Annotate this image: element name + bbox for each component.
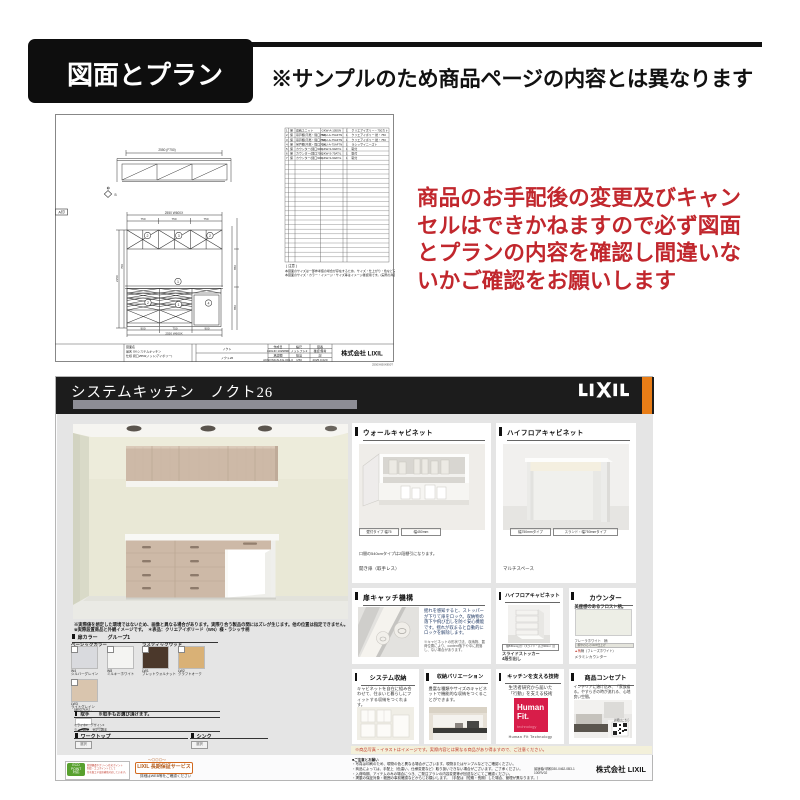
svg-text:GKW-A-105SN: GKW-A-105SN — [322, 129, 342, 133]
svg-text:( 注意 ): ( 注意 ) — [286, 263, 297, 268]
svg-text:1: 1 — [346, 156, 348, 160]
svg-text:1: 1 — [346, 133, 348, 137]
svg-text:確認 備考: 確認 備考 — [314, 348, 327, 353]
svg-text:GKW-S-90AT/L: GKW-S-90AT/L — [322, 147, 342, 151]
svg-text:5: 5 — [286, 147, 288, 151]
svg-text:ノクト26: ノクト26 — [221, 355, 234, 360]
svg-text:仕様 間口2550(ノット)アイボリー): 仕様 間口2550(ノット)アイボリー) — [126, 353, 172, 358]
svg-text:担当: 担当 — [296, 353, 302, 358]
svg-text:GKW-S-75AT/L: GKW-S-75AT/L — [322, 152, 342, 156]
svg-text:本図面のサイズ・カラー・イメージ・サイズ等はイメージ確認用で: 本図面のサイズ・カラー・イメージ・サイズ等はイメージ確認用です。(実際の商品・仕… — [285, 272, 395, 277]
svg-text:3: 3 — [178, 234, 180, 238]
svg-text:2: 2 — [147, 234, 149, 238]
svg-text:カウンター(間口900): カウンター(間口900) — [296, 146, 323, 151]
svg-text:図番: 図番 — [317, 344, 323, 349]
svg-text:クリエアイボリー 総・750: クリエアイボリー 総・750 — [352, 132, 387, 137]
svg-text:AKNOSIGN-KG-001-0: AKNOSIGN-KG-001-0 — [263, 358, 293, 362]
svg-text:詳細はこちら: 詳細はこちら — [614, 718, 630, 722]
svg-text:6: 6 — [286, 152, 288, 156]
svg-text:収納ユニット: 収納ユニット — [296, 128, 313, 133]
svg-text:保: 保 — [290, 155, 293, 160]
svg-text:ノクト: ノクト — [222, 346, 231, 351]
svg-text:作成日: 作成日 — [273, 344, 282, 349]
svg-text:株式会社 LIXIL: 株式会社 LIXIL — [341, 350, 383, 358]
svg-text:保: 保 — [290, 151, 293, 156]
svg-text:取付: 取付 — [352, 146, 358, 151]
svg-text:A印: A印 — [58, 210, 65, 215]
svg-text:750: 750 — [172, 327, 177, 331]
svg-text:750: 750 — [140, 217, 145, 221]
svg-text:2: 2 — [147, 301, 149, 305]
svg-text:4: 4 — [286, 142, 288, 146]
svg-text:取付: 取付 — [352, 151, 358, 156]
svg-text:GKU-A-75AF7N: GKU-A-75AF7N — [322, 142, 343, 146]
svg-text:保: 保 — [290, 146, 293, 151]
svg-text:カウンター(間口900): カウンター(間口900) — [296, 155, 323, 160]
svg-text:2550 W600X: 2550 W600X — [165, 211, 184, 215]
svg-text:カウンター(間口750): カウンター(間口750) — [296, 151, 323, 156]
svg-text:1: 1 — [346, 147, 348, 151]
svg-text:1: 1 — [346, 142, 348, 146]
svg-text:クリエアイボリー・750カト: クリエアイボリー・750カト — [352, 128, 389, 133]
svg-text:1: 1 — [286, 129, 288, 133]
svg-text:GKU-A-75AF7N: GKU-A-75AF7N — [322, 133, 343, 137]
svg-text:900: 900 — [140, 327, 145, 331]
svg-text:GKU-A-75AF7N: GKU-A-75AF7N — [322, 138, 343, 142]
svg-text:2: 2 — [286, 133, 288, 137]
svg-text:品名 GKシステムキッチン: 品名 GKシステムキッチン — [126, 349, 161, 354]
svg-text:1: 1 — [346, 152, 348, 156]
svg-text:3: 3 — [286, 138, 288, 142]
svg-text:縮尺: 縮尺 — [296, 344, 302, 349]
svg-text:ラシッサイニーズト: ラシッサイニーズト — [352, 141, 378, 146]
svg-text:750: 750 — [203, 217, 208, 221]
svg-text:850: 850 — [233, 305, 237, 310]
svg-text:承認欄: 承認欄 — [273, 353, 282, 358]
svg-text:取付: 取付 — [352, 155, 358, 160]
svg-text:850: 850 — [233, 265, 237, 270]
svg-text:1: 1 — [178, 303, 180, 307]
svg-text:ノットフト2: ノットフト2 — [291, 348, 308, 353]
svg-text:900: 900 — [204, 327, 209, 331]
svg-text:クリエアイボリー 総・750: クリエアイボリー 総・750 — [352, 137, 387, 142]
svg-text:7: 7 — [286, 156, 288, 160]
svg-text:保: 保 — [290, 128, 293, 133]
svg-text:2550 W600X: 2550 W600X — [165, 332, 182, 336]
svg-text:700: 700 — [120, 264, 124, 269]
svg-text:記: 記 — [318, 353, 321, 358]
svg-text:1: 1 — [177, 280, 179, 284]
svg-text:4: 4 — [208, 302, 210, 306]
svg-text:保: 保 — [290, 141, 293, 146]
svg-text:GKW-S-90AT/L: GKW-S-90AT/L — [322, 156, 342, 160]
svg-text:2550X650X850T: 2550X650X850T — [372, 363, 393, 367]
svg-text:保: 保 — [290, 132, 293, 137]
svg-text:保: 保 — [290, 137, 293, 142]
svg-text:420LID 1029890: 420LID 1029890 — [267, 349, 290, 353]
svg-text:図面名: 図面名 — [126, 344, 135, 349]
svg-text:750: 750 — [171, 217, 176, 221]
svg-text:2025.0.020: 2025.0.020 — [312, 358, 327, 362]
svg-text:B: B — [115, 193, 117, 197]
svg-text:2: 2 — [209, 234, 211, 238]
svg-text:2350: 2350 — [115, 275, 119, 282]
svg-text:1: 1 — [346, 138, 348, 142]
svg-text:1: 1 — [346, 129, 348, 133]
svg-text:2550 (F750): 2550 (F750) — [158, 148, 175, 152]
svg-text:1/50: 1/50 — [296, 358, 302, 362]
